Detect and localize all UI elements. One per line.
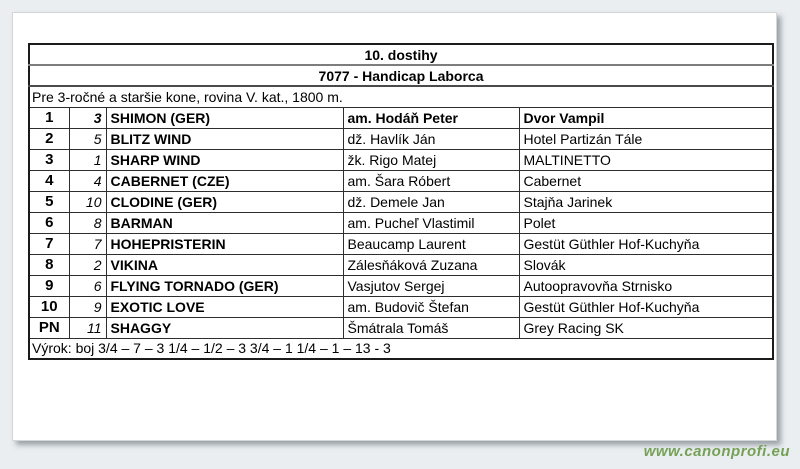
program-number-cell: 7	[69, 233, 106, 254]
owner-name-cell: Polet	[519, 212, 773, 233]
finish-position-cell: 2	[29, 128, 69, 149]
rider-name-cell: am. Budovič Štefan	[343, 296, 519, 317]
finish-position-cell: 8	[29, 254, 69, 275]
result-row: 31SHARP WINDžk. Rigo MatejMALTINETTO	[29, 149, 773, 170]
finish-position-cell: 10	[29, 296, 69, 317]
result-row: 44CABERNET (CZE)am. Šara RóbertCabernet	[29, 170, 773, 191]
result-row: 109EXOTIC LOVEam. Budovič ŠtefanGestüt G…	[29, 296, 773, 317]
rider-name-cell: dž. Havlík Ján	[343, 128, 519, 149]
owner-name-cell: Slovák	[519, 254, 773, 275]
program-number-cell: 6	[69, 275, 106, 296]
program-number-cell: 11	[69, 317, 106, 338]
race-subtitle: 7077 - Handicap Laborca	[29, 65, 773, 86]
result-row: 82VIKINAZálesňáková ZuzanaSlovák	[29, 254, 773, 275]
owner-name-cell: MALTINETTO	[519, 149, 773, 170]
result-row: PN11SHAGGYŠmátrala TomášGrey Racing SK	[29, 317, 773, 338]
horse-name-cell: BARMAN	[106, 212, 343, 233]
race-conditions: Pre 3-ročné a staršie kone, rovina V. ka…	[29, 86, 773, 107]
finish-position-cell: 5	[29, 191, 69, 212]
rider-name-cell: Vasjutov Sergej	[343, 275, 519, 296]
rider-name-cell: žk. Rigo Matej	[343, 149, 519, 170]
race-verdict: Výrok: boj 3/4 – 7 – 3 1/4 – 1/2 – 3 3/4…	[29, 338, 773, 359]
program-number-cell: 3	[69, 107, 106, 128]
finish-position-cell: 7	[29, 233, 69, 254]
race-subtitle-row: 7077 - Handicap Laborca	[29, 65, 773, 86]
program-number-cell: 8	[69, 212, 106, 233]
finish-position-cell: 6	[29, 212, 69, 233]
rider-name-cell: Beaucamp Laurent	[343, 233, 519, 254]
program-number-cell: 2	[69, 254, 106, 275]
horse-name-cell: SHIMON (GER)	[106, 107, 343, 128]
result-row: 68BARMANam. Pucheľ VlastimilPolet	[29, 212, 773, 233]
owner-name-cell: Cabernet	[519, 170, 773, 191]
race-title-row: 10. dostihy	[29, 44, 773, 65]
owner-name-cell: Dvor Vampil	[519, 107, 773, 128]
horse-name-cell: EXOTIC LOVE	[106, 296, 343, 317]
finish-position-cell: 3	[29, 149, 69, 170]
watermark-url: www.canonprofi.eu	[644, 443, 790, 460]
finish-position-cell: 1	[29, 107, 69, 128]
result-row: 13SHIMON (GER)am. Hodáň PeterDvor Vampil	[29, 107, 773, 128]
horse-name-cell: CABERNET (CZE)	[106, 170, 343, 191]
owner-name-cell: Hotel Partizán Tále	[519, 128, 773, 149]
rider-name-cell: am. Pucheľ Vlastimil	[343, 212, 519, 233]
program-number-cell: 5	[69, 128, 106, 149]
rider-name-cell: Zálesňáková Zuzana	[343, 254, 519, 275]
program-number-cell: 4	[69, 170, 106, 191]
owner-name-cell: Stajňa Jarinek	[519, 191, 773, 212]
program-number-cell: 9	[69, 296, 106, 317]
rider-name-cell: am. Šara Róbert	[343, 170, 519, 191]
race-conditions-row: Pre 3-ročné a staršie kone, rovina V. ka…	[29, 86, 773, 107]
horse-name-cell: VIKINA	[106, 254, 343, 275]
result-row: 77HOHEPRISTERINBeaucamp LaurentGestüt Gü…	[29, 233, 773, 254]
owner-name-cell: Gestüt Güthler Hof-Kuchyňa	[519, 296, 773, 317]
horse-name-cell: FLYING TORNADO (GER)	[106, 275, 343, 296]
program-number-cell: 10	[69, 191, 106, 212]
finish-position-cell: 9	[29, 275, 69, 296]
result-row: 25BLITZ WINDdž. Havlík JánHotel Partizán…	[29, 128, 773, 149]
finish-position-cell: 4	[29, 170, 69, 191]
owner-name-cell: Gestüt Güthler Hof-Kuchyňa	[519, 233, 773, 254]
finish-position-cell: PN	[29, 317, 69, 338]
owner-name-cell: Grey Racing SK	[519, 317, 773, 338]
horse-name-cell: SHARP WIND	[106, 149, 343, 170]
program-number-cell: 1	[69, 149, 106, 170]
owner-name-cell: Autoopravovňa Strnisko	[519, 275, 773, 296]
horse-name-cell: CLODINE (GER)	[106, 191, 343, 212]
results-body: 13SHIMON (GER)am. Hodáň PeterDvor Vampil…	[29, 107, 773, 338]
rider-name-cell: Šmátrala Tomáš	[343, 317, 519, 338]
verdict-row: Výrok: boj 3/4 – 7 – 3 1/4 – 1/2 – 3 3/4…	[29, 338, 773, 359]
horse-name-cell: SHAGGY	[106, 317, 343, 338]
rider-name-cell: dž. Demele Jan	[343, 191, 519, 212]
horse-name-cell: HOHEPRISTERIN	[106, 233, 343, 254]
race-title: 10. dostihy	[29, 44, 773, 65]
race-results-table: 10. dostihy 7077 - Handicap Laborca Pre …	[28, 43, 774, 360]
rider-name-cell: am. Hodáň Peter	[343, 107, 519, 128]
result-row: 96FLYING TORNADO (GER)Vasjutov SergejAut…	[29, 275, 773, 296]
result-row: 510CLODINE (GER)dž. Demele JanStajňa Jar…	[29, 191, 773, 212]
horse-name-cell: BLITZ WIND	[106, 128, 343, 149]
